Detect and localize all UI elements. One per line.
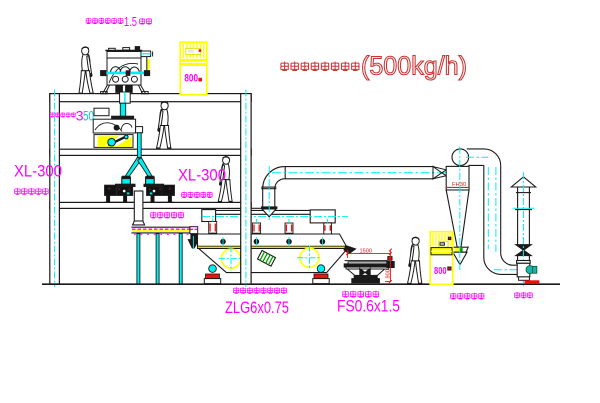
svg-text:FS0.6x1.5: FS0.6x1.5 <box>337 298 400 316</box>
svg-text:1.5: 1.5 <box>124 14 137 29</box>
svg-text:ZLG6x0.75: ZLG6x0.75 <box>225 298 289 317</box>
svg-text:FH30: FH30 <box>452 182 466 188</box>
svg-text:1500: 1500 <box>360 248 372 254</box>
svg-text:50: 50 <box>83 108 94 124</box>
svg-text:(500kg/h): (500kg/h) <box>361 51 467 81</box>
svg-text:XL-300: XL-300 <box>14 162 62 181</box>
svg-text:800: 800 <box>434 265 447 277</box>
svg-text:XL-300: XL-300 <box>178 166 226 185</box>
svg-text:800: 800 <box>184 73 198 85</box>
svg-text:900: 900 <box>385 269 391 278</box>
